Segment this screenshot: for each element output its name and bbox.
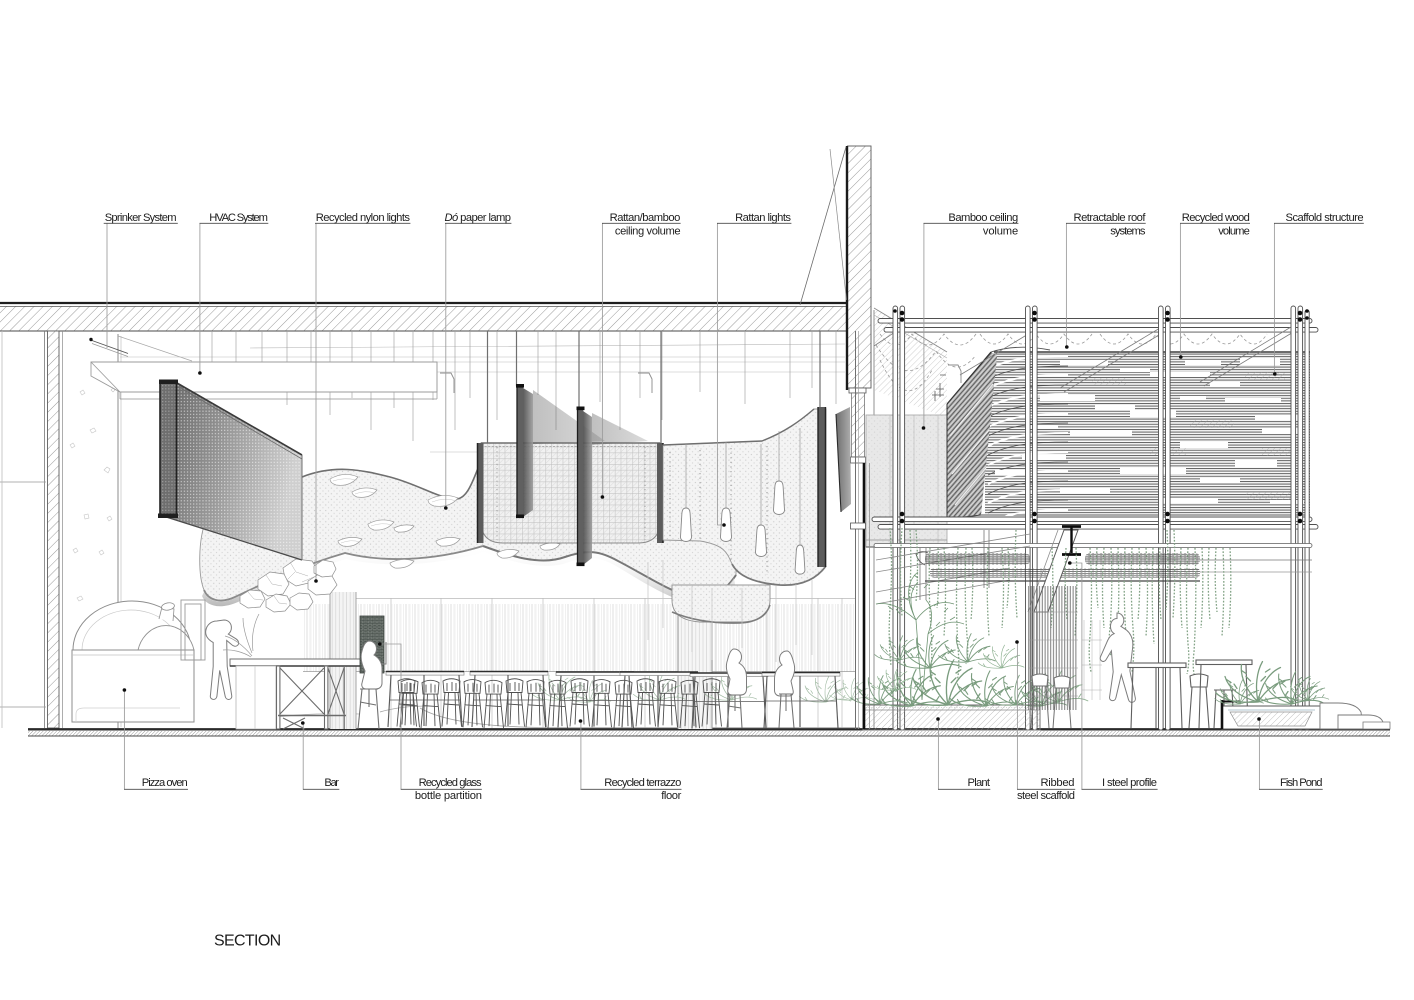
svg-text:floor: floor xyxy=(661,790,681,802)
svg-text:Plant: Plant xyxy=(968,777,991,789)
svg-text:Fish Pond: Fish Pond xyxy=(1280,777,1323,789)
svg-text:Rattan/bamboo: Rattan/bamboo xyxy=(610,212,681,224)
svg-text:systems: systems xyxy=(1110,225,1146,237)
svg-text:Scaffold structure: Scaffold structure xyxy=(1286,212,1364,224)
svg-text:volume: volume xyxy=(983,225,1018,237)
svg-text:SECTION: SECTION xyxy=(214,933,281,950)
svg-text:Recycled glass: Recycled glass xyxy=(419,777,482,789)
svg-text:Rattan lights: Rattan lights xyxy=(735,212,791,224)
svg-text:Sprinker System: Sprinker System xyxy=(105,212,177,224)
svg-text:bottle partition: bottle partition xyxy=(415,790,482,802)
svg-text:Bamboo ceiling: Bamboo ceiling xyxy=(948,212,1018,224)
svg-text:Retractable roof: Retractable roof xyxy=(1074,212,1147,224)
svg-text:Ribbed: Ribbed xyxy=(1041,777,1075,789)
svg-text:Recycled terrazzo: Recycled terrazzo xyxy=(604,777,681,789)
svg-text:Bar: Bar xyxy=(324,777,339,789)
svg-text:steel scaffold: steel scaffold xyxy=(1017,790,1075,802)
svg-text:ceiling volume: ceiling volume xyxy=(615,225,681,237)
svg-text:Recycled wood: Recycled wood xyxy=(1182,212,1250,224)
svg-text:volume: volume xyxy=(1218,225,1250,237)
svg-text:HVAC System: HVAC System xyxy=(209,212,268,224)
svg-text:Recycled nylon lights: Recycled nylon lights xyxy=(316,212,411,224)
svg-text:I steel profile: I steel profile xyxy=(1102,777,1157,789)
svg-text:Pizza oven: Pizza oven xyxy=(142,777,188,789)
svg-text:Dó paper lamp: Dó paper lamp xyxy=(445,212,512,224)
